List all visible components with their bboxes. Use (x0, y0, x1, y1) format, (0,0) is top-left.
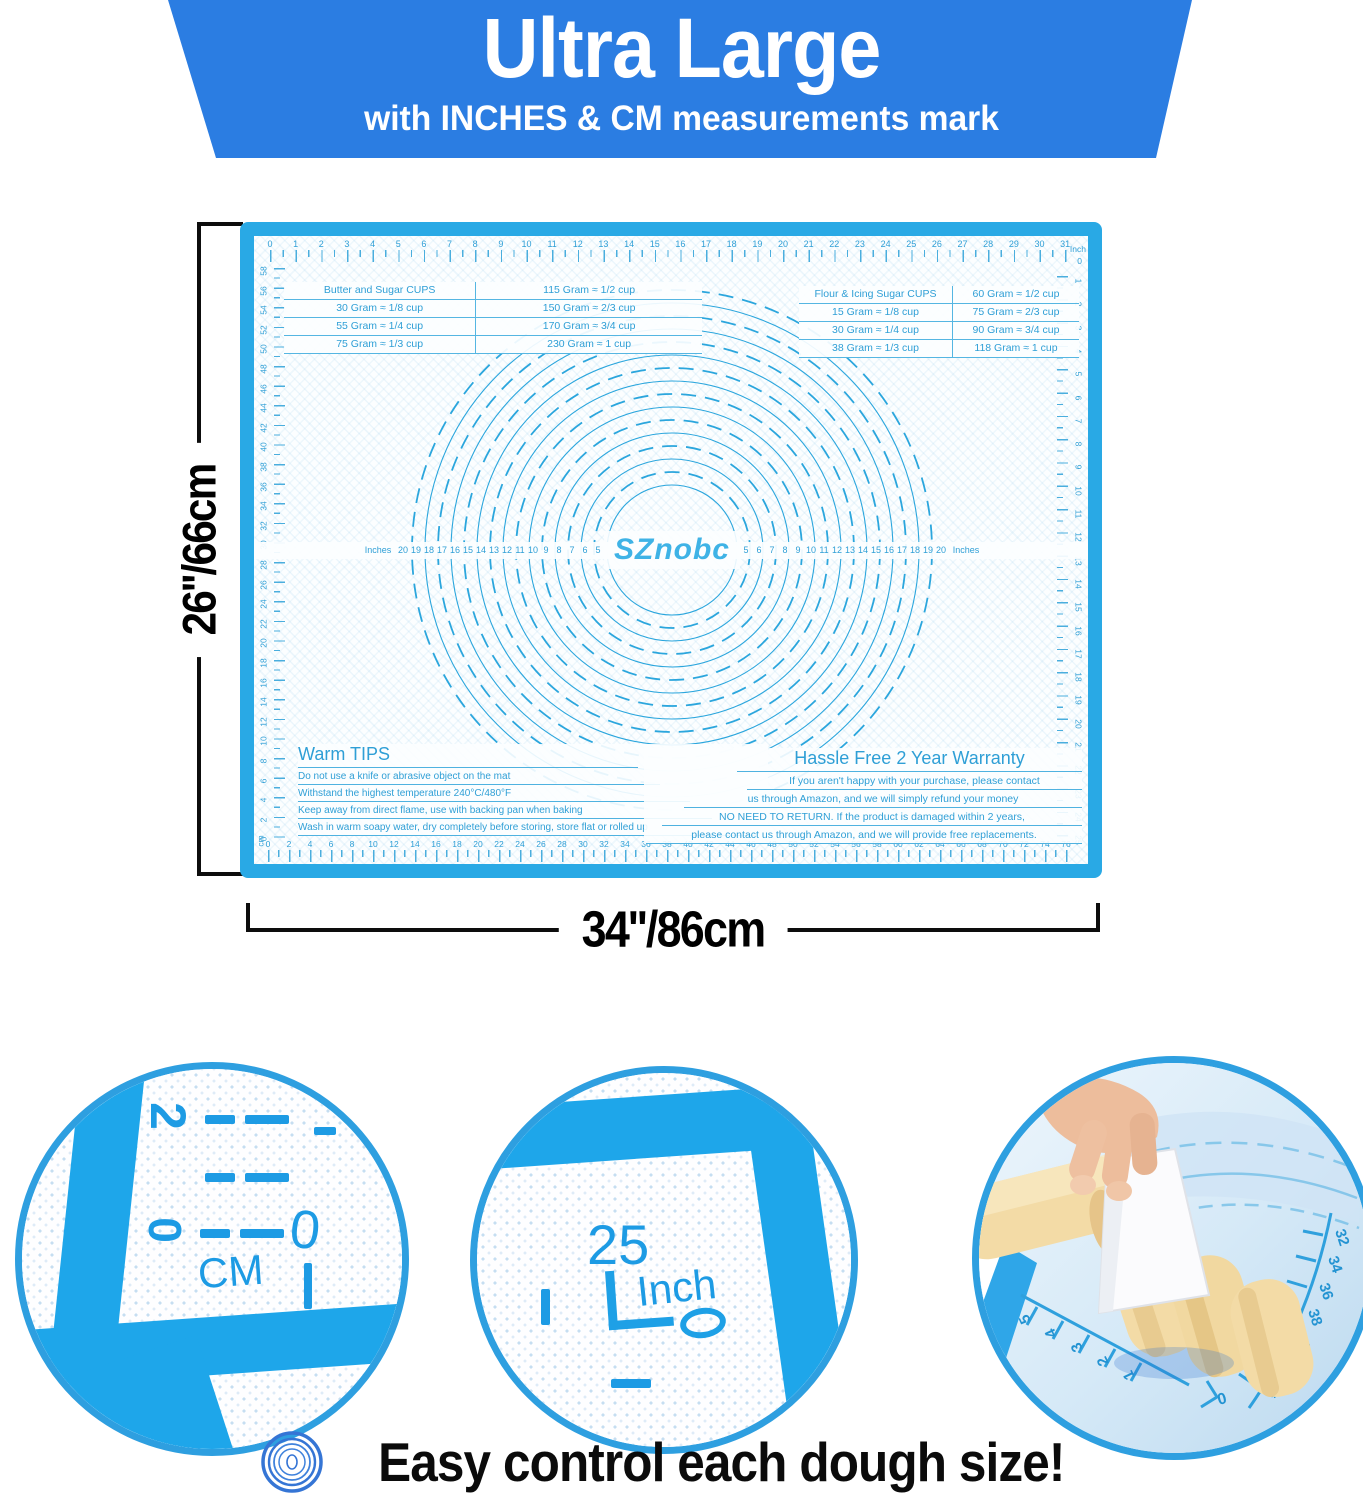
cm-number-2: 2 (143, 1102, 193, 1130)
ruler-number: 19 (1074, 693, 1084, 708)
ruler-number: 52 (259, 322, 269, 337)
ruler-number: 25 (906, 239, 916, 249)
ruler-number: 6 (1074, 390, 1084, 405)
warm-tips-line: Do not use a knife or abrasive object on… (298, 768, 660, 785)
height-dimension-label: 26''/66cm (172, 443, 227, 657)
ruler-bottom-ticks (268, 850, 1070, 862)
ruler-number: 2 (287, 839, 292, 849)
ruler-number: 20 (259, 636, 269, 651)
ruler-number: 16 (431, 839, 440, 849)
banner-subtitle: with INCHES & CM measurements mark (27, 99, 1335, 139)
ruler-number: 20 (1074, 716, 1084, 731)
ruler-number: 32 (259, 518, 269, 533)
ring-number: 19 (923, 545, 933, 555)
ruler-top-ticks (270, 250, 1072, 262)
ruler-number: 20 (473, 839, 482, 849)
baking-mat: 0123456789101112131415161718192021222324… (240, 222, 1102, 878)
ring-band-unit: Inches (365, 545, 392, 555)
ruler-number: 26 (536, 839, 545, 849)
ring-number: 9 (543, 545, 548, 555)
ring-number: 15 (871, 545, 881, 555)
cm-number-0: 0 (142, 1217, 188, 1243)
table-cell: 60 Gram ≈ 1/2 cup (953, 286, 1079, 304)
ruler-number: 16 (1074, 623, 1084, 638)
ruler-number: 42 (259, 420, 269, 435)
ruler-number: 4 (308, 839, 313, 849)
ruler-number: 58 (259, 264, 269, 279)
ruler-number: 0 (259, 832, 269, 847)
warm-tips-title: Warm TIPS (298, 744, 638, 768)
dough-photo-scene: 54321 32343638404244 0 (979, 1063, 1363, 1453)
ring-number: 19 (411, 545, 421, 555)
baking-mat-surface: 0123456789101112131415161718192021222324… (254, 236, 1088, 864)
ruler-number: 54 (259, 303, 269, 318)
cm-edge-zero: 0 (287, 1202, 323, 1259)
ruler-number: 36 (259, 479, 269, 494)
ring-number: 17 (437, 545, 447, 555)
ring-number: 5 (595, 545, 600, 555)
ruler-number: 6 (329, 839, 334, 849)
ruler-number: 34 (259, 499, 269, 514)
ruler-number: 28 (983, 239, 993, 249)
table-cell: 75 Gram ≈ 1/3 cup (284, 336, 476, 354)
ruler-number: 9 (498, 239, 503, 249)
table-cell: 230 Gram ≈ 1 cup (476, 336, 702, 354)
callout-inch-detail: 25 Inch 0 (470, 1066, 858, 1454)
ring-number: 6 (582, 545, 587, 555)
ruler-number: 2 (259, 812, 269, 827)
ruler-number: 16 (259, 675, 269, 690)
ring-number: 18 (910, 545, 920, 555)
inch-tick-left (541, 1289, 550, 1325)
cm-tick-marks (200, 1229, 284, 1238)
ring-number: 11 (819, 545, 828, 555)
ruler-number: 28 (259, 558, 269, 573)
ring-number: 12 (832, 545, 842, 555)
ruler-number: 20 (778, 239, 788, 249)
ruler-number: 28 (557, 839, 566, 849)
ruler-number: 5 (1074, 367, 1084, 382)
ruler-number: 5 (396, 239, 401, 249)
ruler-number: 4 (370, 239, 375, 249)
cm-tick-marks (205, 1115, 289, 1124)
cm-tick-partial (314, 1127, 336, 1135)
ruler-number: 19 (752, 239, 762, 249)
table-cell: 30 Gram ≈ 1/4 cup (799, 322, 953, 340)
table-cell: 55 Gram ≈ 1/4 cup (284, 318, 476, 336)
ruler-number: 8 (1074, 437, 1084, 452)
warranty-lines: If you aren't happy with your purchase, … (644, 772, 1082, 844)
ruler-number: 8 (473, 239, 478, 249)
ruler-number: 26 (259, 577, 269, 592)
ring-number: 7 (769, 545, 774, 555)
ruler-number: 10 (521, 239, 531, 249)
dimension-cap-top (197, 222, 243, 226)
butter-sugar-conversion-table: Butter and Sugar CUPS115 Gram ≈ 1/2 cup3… (284, 282, 702, 354)
ring-number: 12 (502, 545, 512, 555)
warranty-line: If you aren't happy with your purchase, … (747, 772, 1082, 790)
table-cell: 170 Gram ≈ 3/4 cup (476, 318, 702, 336)
table-cell: Butter and Sugar CUPS (284, 282, 476, 300)
callout-dough-photo: 54321 32343638404244 0 (972, 1056, 1363, 1460)
warranty-title: Hassle Free 2 Year Warranty (737, 748, 1082, 772)
width-dimension-label: 34''/86cm (559, 900, 787, 959)
ruler-number: 22 (829, 239, 839, 249)
target-circles-icon (260, 1430, 324, 1494)
ruler-number: 26 (932, 239, 942, 249)
warm-tips-line: Withstand the highest temperature 240°C/… (298, 785, 690, 802)
ring-number: 20 (936, 545, 946, 555)
ruler-number: 8 (259, 754, 269, 769)
ruler-number: 15 (1074, 600, 1084, 615)
ruler-number: 17 (1074, 646, 1084, 661)
ruler-number: 15 (650, 239, 660, 249)
table-cell: 150 Gram ≈ 2/3 cup (476, 300, 702, 318)
inch-tick-bottom (611, 1379, 651, 1388)
table-cell: 38 Gram ≈ 1/3 cup (799, 340, 953, 358)
inch-number: 25 (587, 1217, 649, 1273)
ruler-number: 22 (494, 839, 503, 849)
ring-number: 13 (489, 545, 499, 555)
flour-sugar-conversion-table: Flour & Icing Sugar CUPS60 Gram ≈ 1/2 cu… (799, 286, 1079, 358)
dimension-cap-bottom (197, 872, 243, 876)
table-cell: 115 Gram ≈ 1/2 cup (476, 282, 702, 300)
ring-number: 13 (845, 545, 855, 555)
ring-number: 8 (556, 545, 561, 555)
ruler-number: 46 (259, 381, 269, 396)
ring-number: 15 (463, 545, 473, 555)
ruler-number: 16 (675, 239, 685, 249)
ruler-number: 11 (1074, 507, 1084, 522)
ruler-number: 9 (1074, 460, 1084, 475)
cm-edge-tick (304, 1263, 312, 1309)
ruler-number: 8 (350, 839, 355, 849)
ruler-number: 24 (881, 239, 891, 249)
ruler-number: 23 (855, 239, 865, 249)
ring-number: 11 (515, 545, 524, 555)
callout-cm-detail: 2 0 CM 0 (15, 1062, 409, 1456)
ruler-number: 31 (1060, 239, 1070, 249)
ring-number: 10 (806, 545, 816, 555)
warranty-line: NO NEED TO RETURN. If the product is dam… (662, 808, 1082, 826)
ring-number: 6 (756, 545, 761, 555)
table-cell: 118 Gram ≈ 1 cup (953, 340, 1079, 358)
dimension-cap-left (246, 903, 250, 932)
ring-number: 9 (795, 545, 800, 555)
ruler-number: 10 (368, 839, 377, 849)
ruler-number: 3 (344, 239, 349, 249)
ruler-number: 14 (624, 239, 634, 249)
ruler-number: 18 (452, 839, 461, 849)
ring-band-unit: Inches (953, 545, 980, 555)
warranty-line: us through Amazon, and we will simply re… (684, 790, 1082, 808)
ring-number: 5 (743, 545, 748, 555)
ruler-number: 13 (598, 239, 608, 249)
ruler-number: 12 (389, 839, 398, 849)
ruler-number: 34 (620, 839, 629, 849)
ring-number: 16 (884, 545, 894, 555)
ruler-number: 11 (547, 239, 556, 249)
ring-number: 14 (476, 545, 486, 555)
ruler-number: 48 (259, 362, 269, 377)
inch-unit-label: Inch (635, 1263, 718, 1313)
ruler-number: 29 (1009, 239, 1019, 249)
banner-title: Ultra Large (55, 0, 1309, 97)
ruler-number: 50 (259, 342, 269, 357)
ruler-number: 10 (1074, 483, 1084, 498)
ruler-number: 17 (701, 239, 711, 249)
ruler-number: 56 (259, 283, 269, 298)
ruler-number: 10 (259, 734, 269, 749)
footer-caption: Easy control each dough size! (378, 1430, 1064, 1494)
ruler-top-unit: Inch (1070, 244, 1086, 254)
ruler-number: 24 (515, 839, 524, 849)
ruler-number: 6 (421, 239, 426, 249)
footer: Easy control each dough size! (0, 1424, 1363, 1500)
ruler-number: 18 (259, 656, 269, 671)
ruler-number: 18 (727, 239, 737, 249)
ruler-number: 12 (259, 714, 269, 729)
ring-number: 16 (450, 545, 460, 555)
ruler-number: 40 (259, 440, 269, 455)
ruler-number: 32 (599, 839, 608, 849)
table-cell: 75 Gram ≈ 2/3 cup (953, 304, 1079, 322)
dimension-cap-right (1096, 903, 1100, 932)
brand-logo: SZnobc (604, 531, 740, 569)
ruler-number: 27 (958, 239, 968, 249)
ruler-number: 2 (319, 239, 324, 249)
ruler-top-corner-zero: 0 (1077, 256, 1082, 266)
ruler-number: 14 (1074, 576, 1084, 591)
banner: Ultra Large with INCHES & CM measurement… (0, 0, 1363, 162)
warranty-block: Hassle Free 2 Year Warranty If you aren'… (644, 748, 1082, 844)
table-cell: 30 Gram ≈ 1/8 cup (284, 300, 476, 318)
ruler-number: 4 (259, 793, 269, 808)
ring-number: 14 (858, 545, 868, 555)
ring-number: 17 (897, 545, 907, 555)
ruler-number: 1 (293, 239, 298, 249)
ruler-number: 30 (578, 839, 587, 849)
ring-number: 10 (528, 545, 538, 555)
ring-number: 8 (782, 545, 787, 555)
cm-tick-marks (205, 1173, 289, 1182)
ruler-number: 6 (259, 773, 269, 788)
ring-number: 20 (398, 545, 408, 555)
ruler-number: 7 (1074, 413, 1084, 428)
product-infographic: Ultra Large with INCHES & CM measurement… (0, 0, 1363, 1500)
ruler-number: 38 (259, 460, 269, 475)
warranty-line: please contact us through Amazon, and we… (646, 826, 1082, 844)
ring-number: 7 (569, 545, 574, 555)
ruler-number: 44 (259, 401, 269, 416)
ruler-number: 30 (1034, 239, 1044, 249)
ruler-number: 18 (1074, 670, 1084, 685)
ruler-number: 12 (573, 239, 583, 249)
ruler-number: 21 (804, 239, 814, 249)
ruler-number: 0 (267, 239, 272, 249)
ruler-number: 7 (447, 239, 452, 249)
ruler-number: 14 (259, 695, 269, 710)
table-cell: 15 Gram ≈ 1/8 cup (799, 304, 953, 322)
table-cell: Flour & Icing Sugar CUPS (799, 286, 953, 304)
ring-number: 18 (424, 545, 434, 555)
ruler-number: 24 (259, 597, 269, 612)
ruler-number: 14 (410, 839, 419, 849)
ruler-number: 22 (259, 616, 269, 631)
table-cell: 90 Gram ≈ 3/4 cup (953, 322, 1079, 340)
cm-unit-label: CM (197, 1249, 265, 1295)
